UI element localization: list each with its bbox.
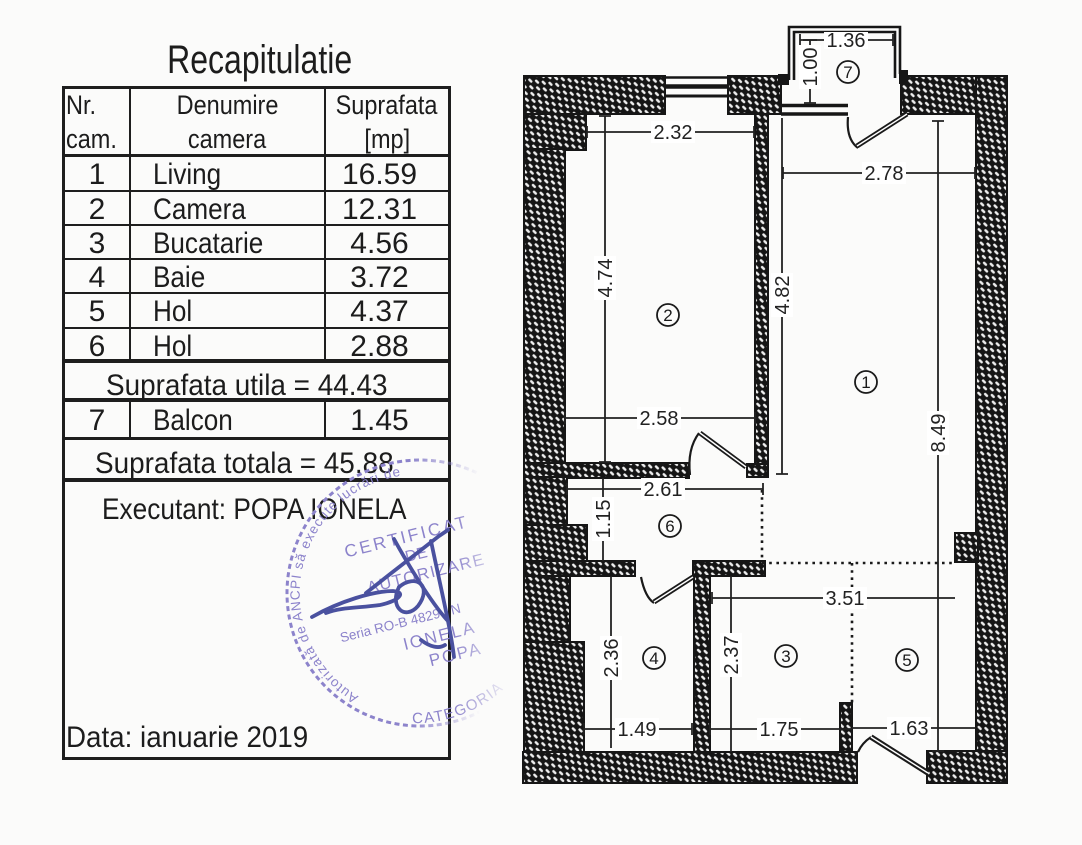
svg-text:2.61: 2.61: [644, 479, 683, 501]
svg-text:3: 3: [781, 647, 790, 666]
svg-text:2.37: 2.37: [721, 636, 743, 675]
svg-text:2.78: 2.78: [865, 163, 904, 185]
svg-text:4: 4: [649, 649, 658, 668]
svg-text:4.74: 4.74: [595, 259, 617, 298]
svg-text:4.82: 4.82: [772, 276, 794, 315]
svg-text:5: 5: [902, 651, 911, 670]
svg-text:1.75: 1.75: [760, 719, 799, 741]
svg-text:2.36: 2.36: [601, 639, 623, 678]
svg-text:1: 1: [861, 373, 870, 392]
svg-text:2: 2: [663, 306, 672, 325]
svg-text:1.00: 1.00: [800, 48, 822, 87]
svg-text:6: 6: [665, 517, 674, 536]
svg-text:1.63: 1.63: [890, 718, 929, 740]
svg-text:1.15: 1.15: [593, 500, 615, 539]
svg-text:3.51: 3.51: [826, 588, 865, 610]
svg-text:8.49: 8.49: [928, 414, 950, 453]
svg-text:7: 7: [843, 63, 852, 82]
svg-text:1.49: 1.49: [618, 719, 657, 741]
svg-text:2.58: 2.58: [640, 408, 679, 430]
svg-text:2.32: 2.32: [654, 122, 693, 144]
svg-text:1.36: 1.36: [827, 30, 866, 52]
